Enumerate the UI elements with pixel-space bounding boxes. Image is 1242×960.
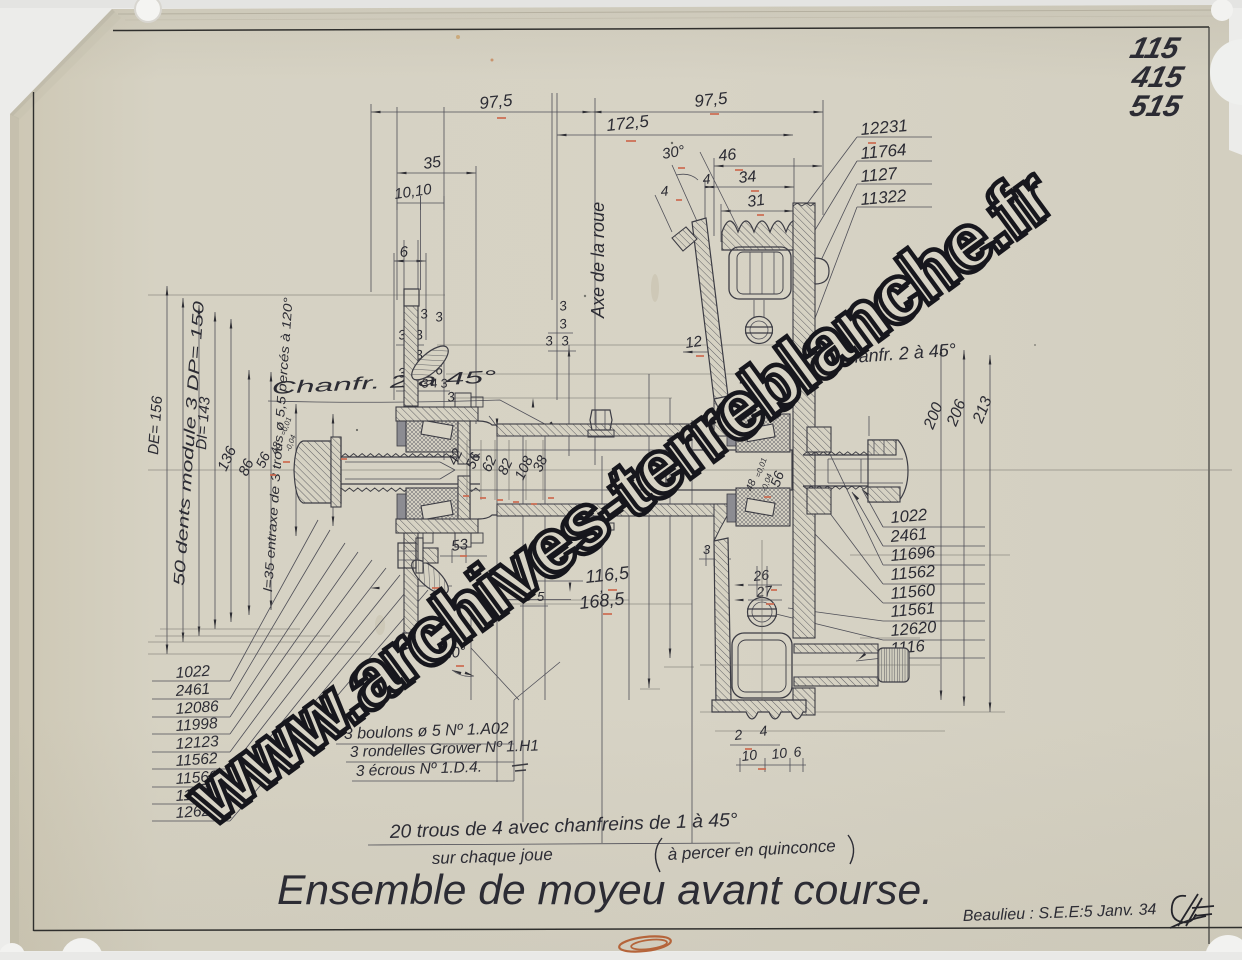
svg-text:97,5: 97,5 — [478, 91, 513, 113]
svg-text:1127: 1127 — [860, 164, 899, 186]
svg-text:46: 46 — [718, 146, 738, 165]
svg-text:35: 35 — [422, 154, 442, 173]
svg-text:11998: 11998 — [175, 715, 218, 735]
svg-text:31: 31 — [746, 192, 766, 211]
svg-text:3: 3 — [703, 542, 711, 557]
svg-text:97,5: 97,5 — [693, 89, 728, 111]
svg-text:515: 515 — [1126, 89, 1185, 122]
svg-text:11764: 11764 — [860, 140, 907, 163]
svg-text:4: 4 — [702, 170, 711, 187]
svg-text:11322: 11322 — [860, 186, 908, 209]
svg-text:2461: 2461 — [174, 681, 211, 700]
svg-text:34: 34 — [738, 168, 758, 187]
svg-text:2461: 2461 — [889, 525, 928, 546]
svg-text:1022: 1022 — [175, 663, 211, 682]
svg-text:10: 10 — [771, 744, 788, 762]
svg-text:Ensemble de moyeu avant cours: Ensemble de moyeu avant course. — [277, 866, 933, 913]
svg-text:Axe de la roue: Axe de la roue — [588, 202, 608, 319]
svg-text:12: 12 — [684, 333, 704, 352]
svg-text:1022: 1022 — [890, 506, 928, 527]
svg-text:,: , — [600, 579, 604, 595]
svg-text:4: 4 — [660, 182, 669, 199]
